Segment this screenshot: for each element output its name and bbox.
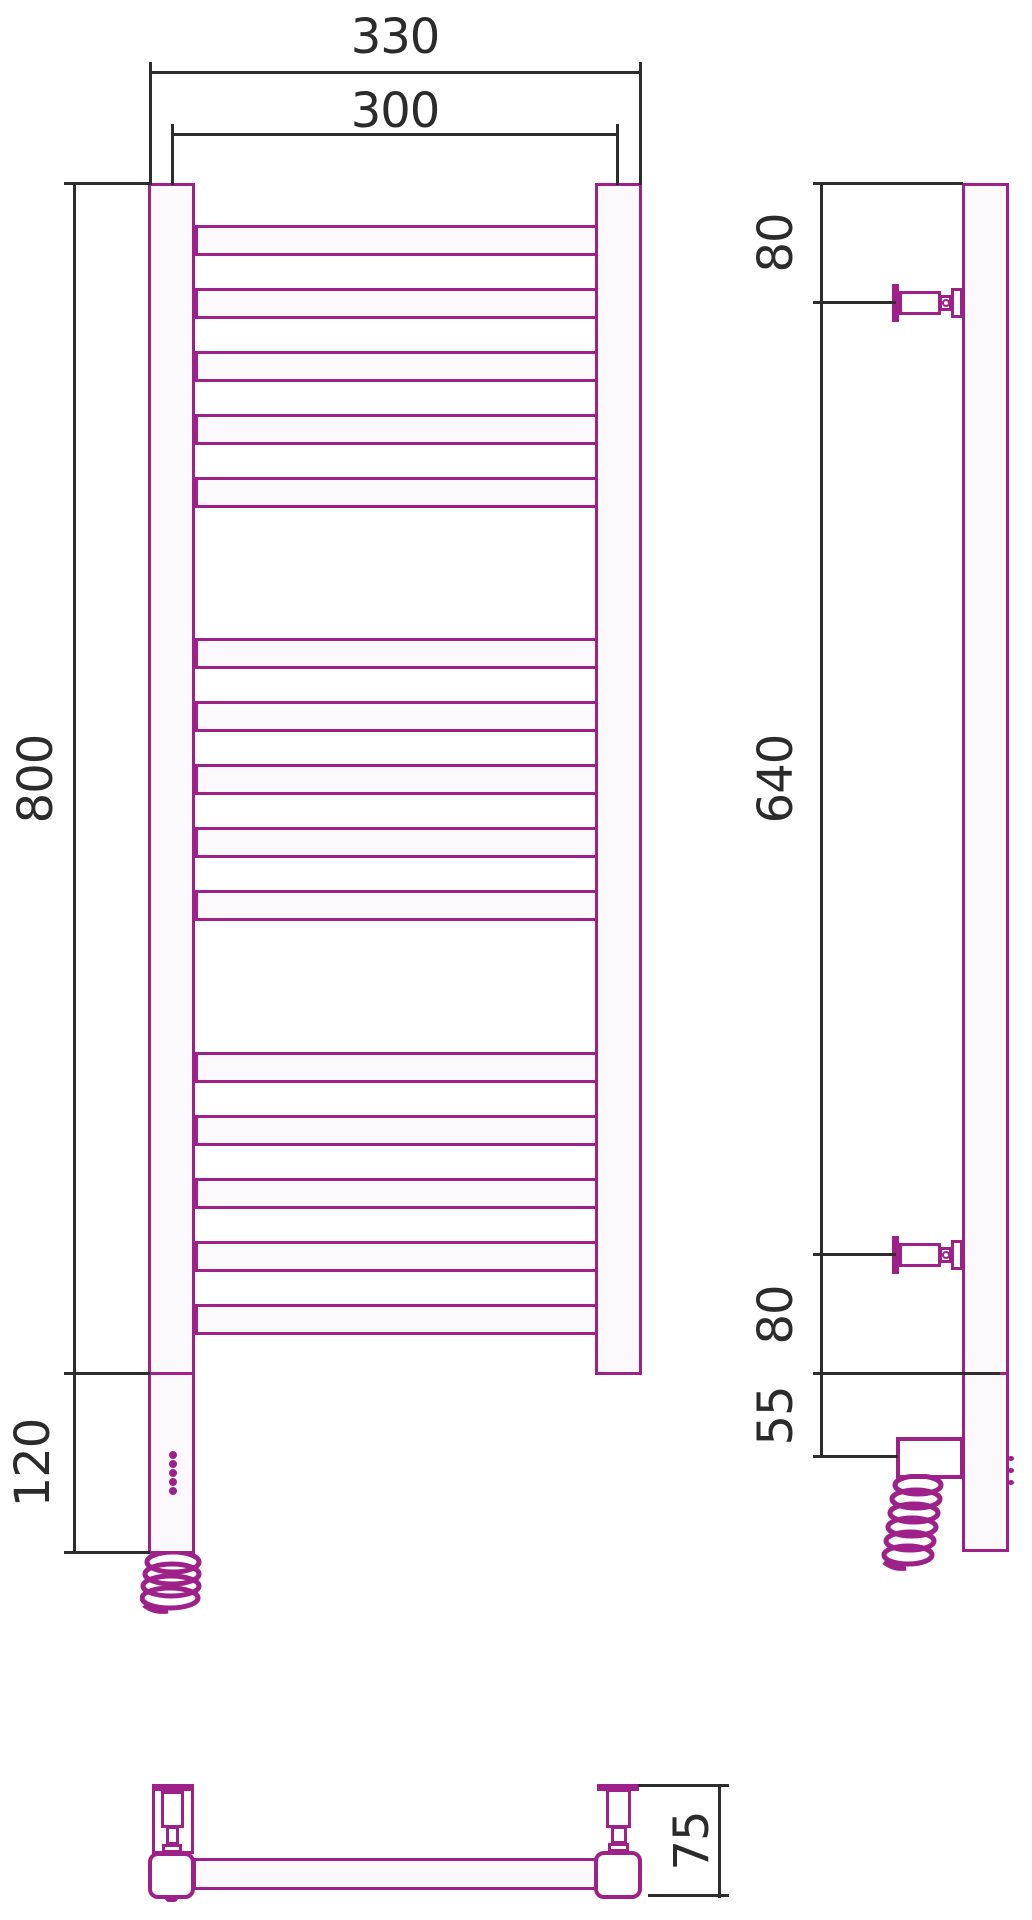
dim-left-tick-bottom — [64, 1551, 150, 1554]
side-heating-unit — [896, 1437, 964, 1479]
dim-300-ext-left — [171, 124, 174, 185]
dim-300-ext-right — [616, 124, 619, 185]
side-bracket-wall-plate — [951, 288, 963, 318]
side-led-dot — [1008, 1468, 1014, 1473]
side-led-dot — [1008, 1480, 1014, 1485]
bottom-right-bracket-base — [608, 1843, 629, 1852]
bottom-right-bracket-collar — [611, 1826, 627, 1844]
led-dot — [169, 1460, 177, 1468]
tube-rung — [195, 477, 598, 508]
dim-left-vline — [73, 183, 76, 1554]
tube-rung — [195, 351, 598, 382]
led-dot — [169, 1451, 177, 1459]
bottom-view-left-post-nub — [165, 1897, 178, 1902]
dim-left-tick-mid — [64, 1372, 150, 1375]
led-dot — [169, 1478, 177, 1486]
dim-side-tick-under — [813, 1455, 898, 1458]
dim-120-label: 120 — [8, 1393, 58, 1533]
front-right-post — [595, 183, 642, 1375]
tube-rung — [195, 638, 598, 669]
tube-rung — [195, 414, 598, 445]
tube-rung — [195, 827, 598, 858]
front-coil-cable-icon — [140, 1551, 206, 1615]
dim-75-label: 75 — [667, 1771, 717, 1911]
dim-330-ext-left — [149, 62, 152, 185]
dim-640-label: 640 — [751, 709, 801, 849]
tube-rung — [195, 764, 598, 795]
side-post — [962, 183, 1009, 1375]
side-led-dot — [1008, 1456, 1014, 1461]
side-bracket-screw-icon — [942, 1251, 950, 1259]
tube-rung — [195, 701, 598, 732]
side-bracket-wall-plate — [951, 1240, 963, 1270]
dim-300-label: 300 — [325, 86, 465, 136]
dim-330-label: 330 — [325, 12, 465, 62]
tube-rung — [195, 1178, 598, 1209]
dim-side-tick-bracket1 — [813, 301, 896, 304]
tube-rung — [195, 1304, 598, 1335]
tube-rung — [195, 225, 598, 256]
side-bracket-body — [899, 291, 941, 315]
led-dot — [169, 1487, 177, 1495]
dim-side-tick-bracket2 — [813, 1253, 896, 1256]
bottom-right-bracket-body — [606, 1789, 631, 1828]
bottom-view-right-post — [594, 1851, 642, 1899]
dim-side-tick-bottom — [813, 1372, 1000, 1375]
dim-330-line — [150, 71, 641, 74]
side-bracket-screw-icon — [942, 299, 950, 307]
front-left-post — [148, 183, 195, 1375]
tube-rung — [195, 1115, 598, 1146]
tube-rung — [195, 890, 598, 921]
tube-rung — [195, 1241, 598, 1272]
side-heater-housing — [962, 1372, 1009, 1552]
dim-330-ext-right — [639, 62, 642, 185]
bottom-left-bracket-body — [161, 1791, 184, 1828]
bottom-left-bracket-base — [162, 1844, 182, 1853]
bottom-left-bracket-flange — [152, 1784, 194, 1791]
bottom-view-left-post — [148, 1852, 195, 1899]
technical-drawing-canvas: 330 300 800 120 80 640 80 55 — [0, 0, 1032, 1920]
side-coil-cable-icon — [880, 1474, 950, 1574]
bottom-left-bracket-stem — [166, 1826, 179, 1845]
tube-rung — [195, 1052, 598, 1083]
dim-side-tick-top — [813, 182, 963, 185]
side-bracket-body — [899, 1243, 941, 1267]
dim-side-vline — [820, 183, 823, 1458]
tube-rung — [195, 288, 598, 319]
dim-left-tick-top — [64, 182, 150, 185]
dim-80-top-label: 80 — [751, 173, 801, 313]
bottom-view-rail-bar — [193, 1858, 597, 1890]
led-dot — [169, 1469, 177, 1477]
dim-55-label: 55 — [751, 1346, 801, 1486]
dim-800-label: 800 — [11, 709, 61, 849]
